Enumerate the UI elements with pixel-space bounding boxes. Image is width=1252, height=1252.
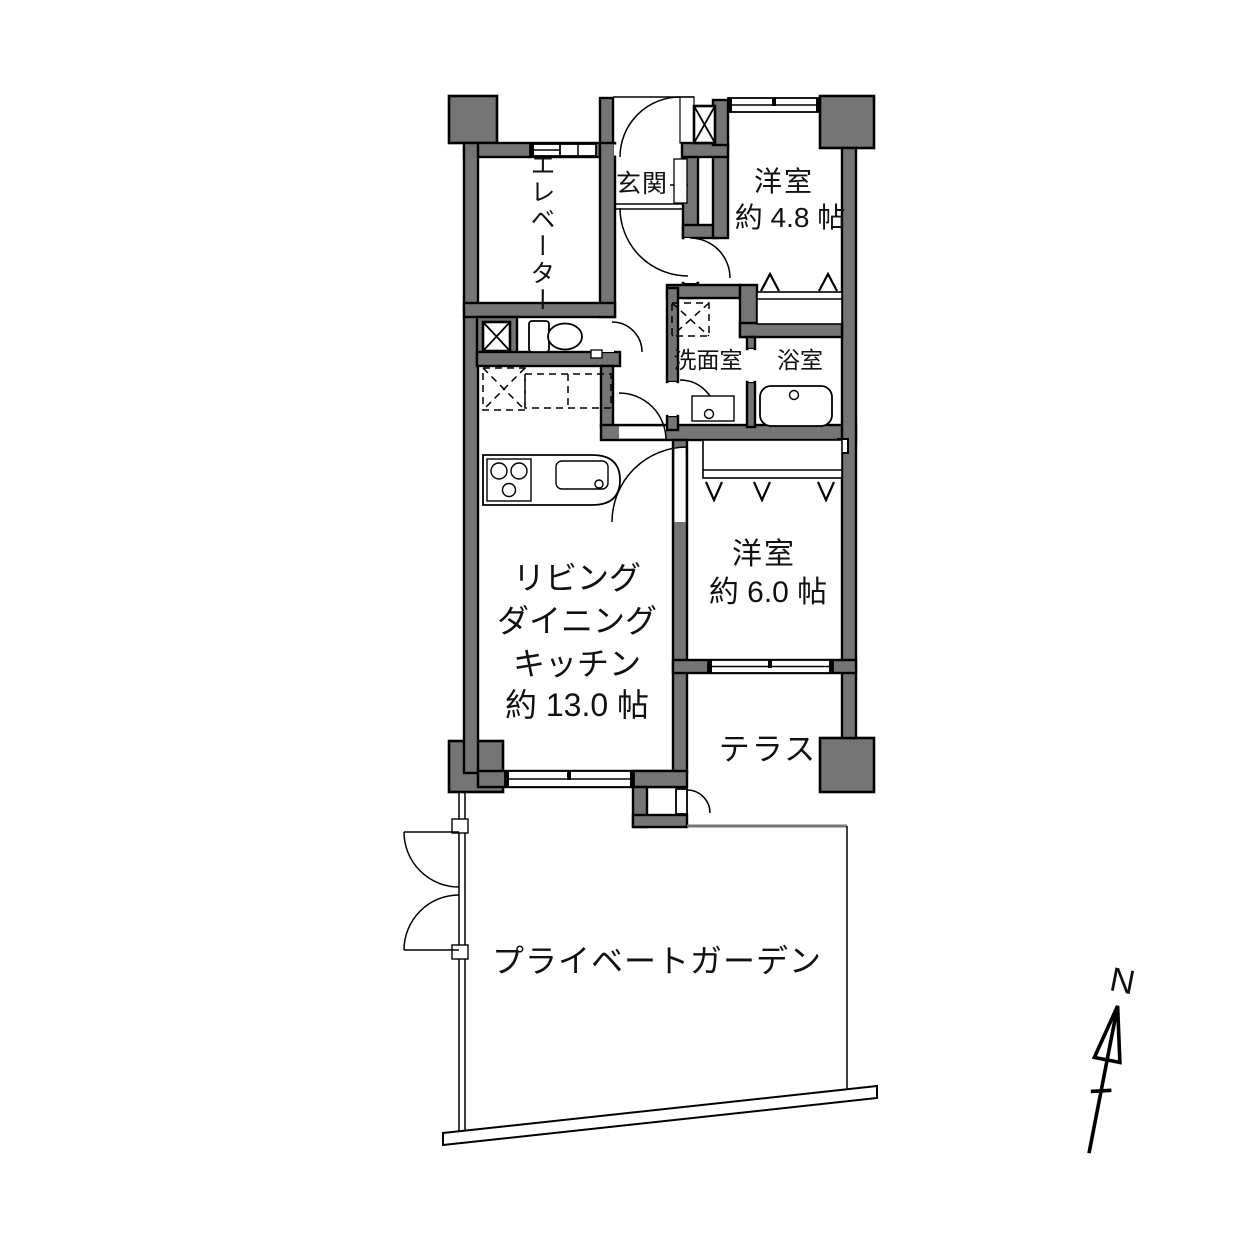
wall-bathroom-left-a — [747, 337, 755, 349]
label-entrance: 玄関 — [616, 170, 668, 198]
wall-bathroom-top — [740, 323, 842, 337]
bathtub-icon — [760, 386, 832, 426]
label-garden: プライベートガーデン — [492, 943, 822, 979]
pipe-shaft-left-icon — [483, 322, 510, 351]
basin-icon — [692, 396, 734, 421]
entrance-inner-door-arc — [620, 208, 688, 276]
opening-ldk — [619, 427, 666, 439]
wall-48-left — [713, 145, 728, 238]
label-washroom: 洗面室 — [674, 347, 743, 373]
garden-gate-post-bottom — [452, 945, 468, 959]
label-ldk-line1: リビング — [513, 560, 641, 596]
garden-exit-door-arc — [687, 790, 710, 813]
opening-bedroom2 — [675, 447, 686, 522]
wall-elevator-right — [600, 143, 615, 317]
refrigerator-space-icon — [483, 368, 525, 410]
floorplan-drawing: N エレベーター 玄関 洋室 約 4.8 帖 洗面室 浴室 リビング ダイニング… — [0, 0, 1252, 1252]
label-bedroom1-name: 洋室 — [754, 166, 814, 197]
opening-toilet — [602, 322, 614, 352]
window-bedroom1 — [728, 98, 820, 112]
label-bathroom: 浴室 — [777, 347, 823, 373]
closet-bedroom1 — [757, 274, 842, 324]
label-ldk-line2: ダイニング — [497, 603, 657, 639]
garden-double-door — [404, 832, 459, 950]
shoe-cabinet — [674, 159, 687, 203]
label-elevator: エレベーター — [527, 152, 555, 314]
window-bedroom2 — [708, 660, 833, 673]
pillar-top-right — [820, 96, 874, 148]
window-ldk — [505, 771, 634, 787]
cupboard-space-dashed — [525, 374, 611, 408]
compass-north-label: N — [1107, 960, 1138, 1002]
stove-icon — [487, 459, 531, 501]
garden-gate-post-top — [452, 819, 468, 833]
wall-left — [464, 143, 478, 773]
floorplan-page: N エレベーター 玄関 洋室 約 4.8 帖 洗面室 浴室 リビング ダイニング… — [0, 0, 1252, 1252]
wall-vestibule-bottom — [633, 815, 687, 827]
pillar-top-left — [449, 96, 497, 143]
compass-shaft — [1089, 1006, 1118, 1153]
label-bedroom1-size: 約 4.8 帖 — [735, 202, 845, 233]
room-labels: エレベーター 玄関 洋室 約 4.8 帖 洗面室 浴室 リビング ダイニング キ… — [492, 152, 845, 979]
porch-side-box — [680, 97, 694, 143]
elevator-door-mark — [560, 144, 596, 156]
label-ldk-size: 約 13.0 帖 — [505, 687, 649, 723]
pipe-shaft-top-icon — [694, 106, 715, 143]
toilet-door-arc — [612, 322, 642, 352]
label-terrace: テラス — [719, 732, 817, 767]
label-ldk-line3: キッチン — [513, 646, 641, 682]
opening-entrance — [614, 145, 679, 156]
garden-fence — [443, 1086, 877, 1145]
wall-washroom-left2 — [667, 416, 678, 430]
wall-bathroom-left-b — [747, 382, 755, 427]
label-bedroom2-name: 洋室 — [732, 538, 796, 571]
label-bedroom2-size: 約 6.0 帖 — [709, 576, 827, 609]
garden-exit-door-leaf — [676, 789, 687, 814]
north-arrow: N — [1076, 960, 1139, 1155]
wall-vestibule-top — [633, 771, 687, 787]
kitchen-counter — [483, 455, 620, 505]
opening-bathroom — [749, 349, 754, 382]
kitchen-sink-icon — [556, 461, 608, 489]
closet-bedroom2 — [703, 440, 842, 500]
opening-washroom — [669, 382, 677, 416]
pillar-bottom-right — [820, 738, 874, 792]
